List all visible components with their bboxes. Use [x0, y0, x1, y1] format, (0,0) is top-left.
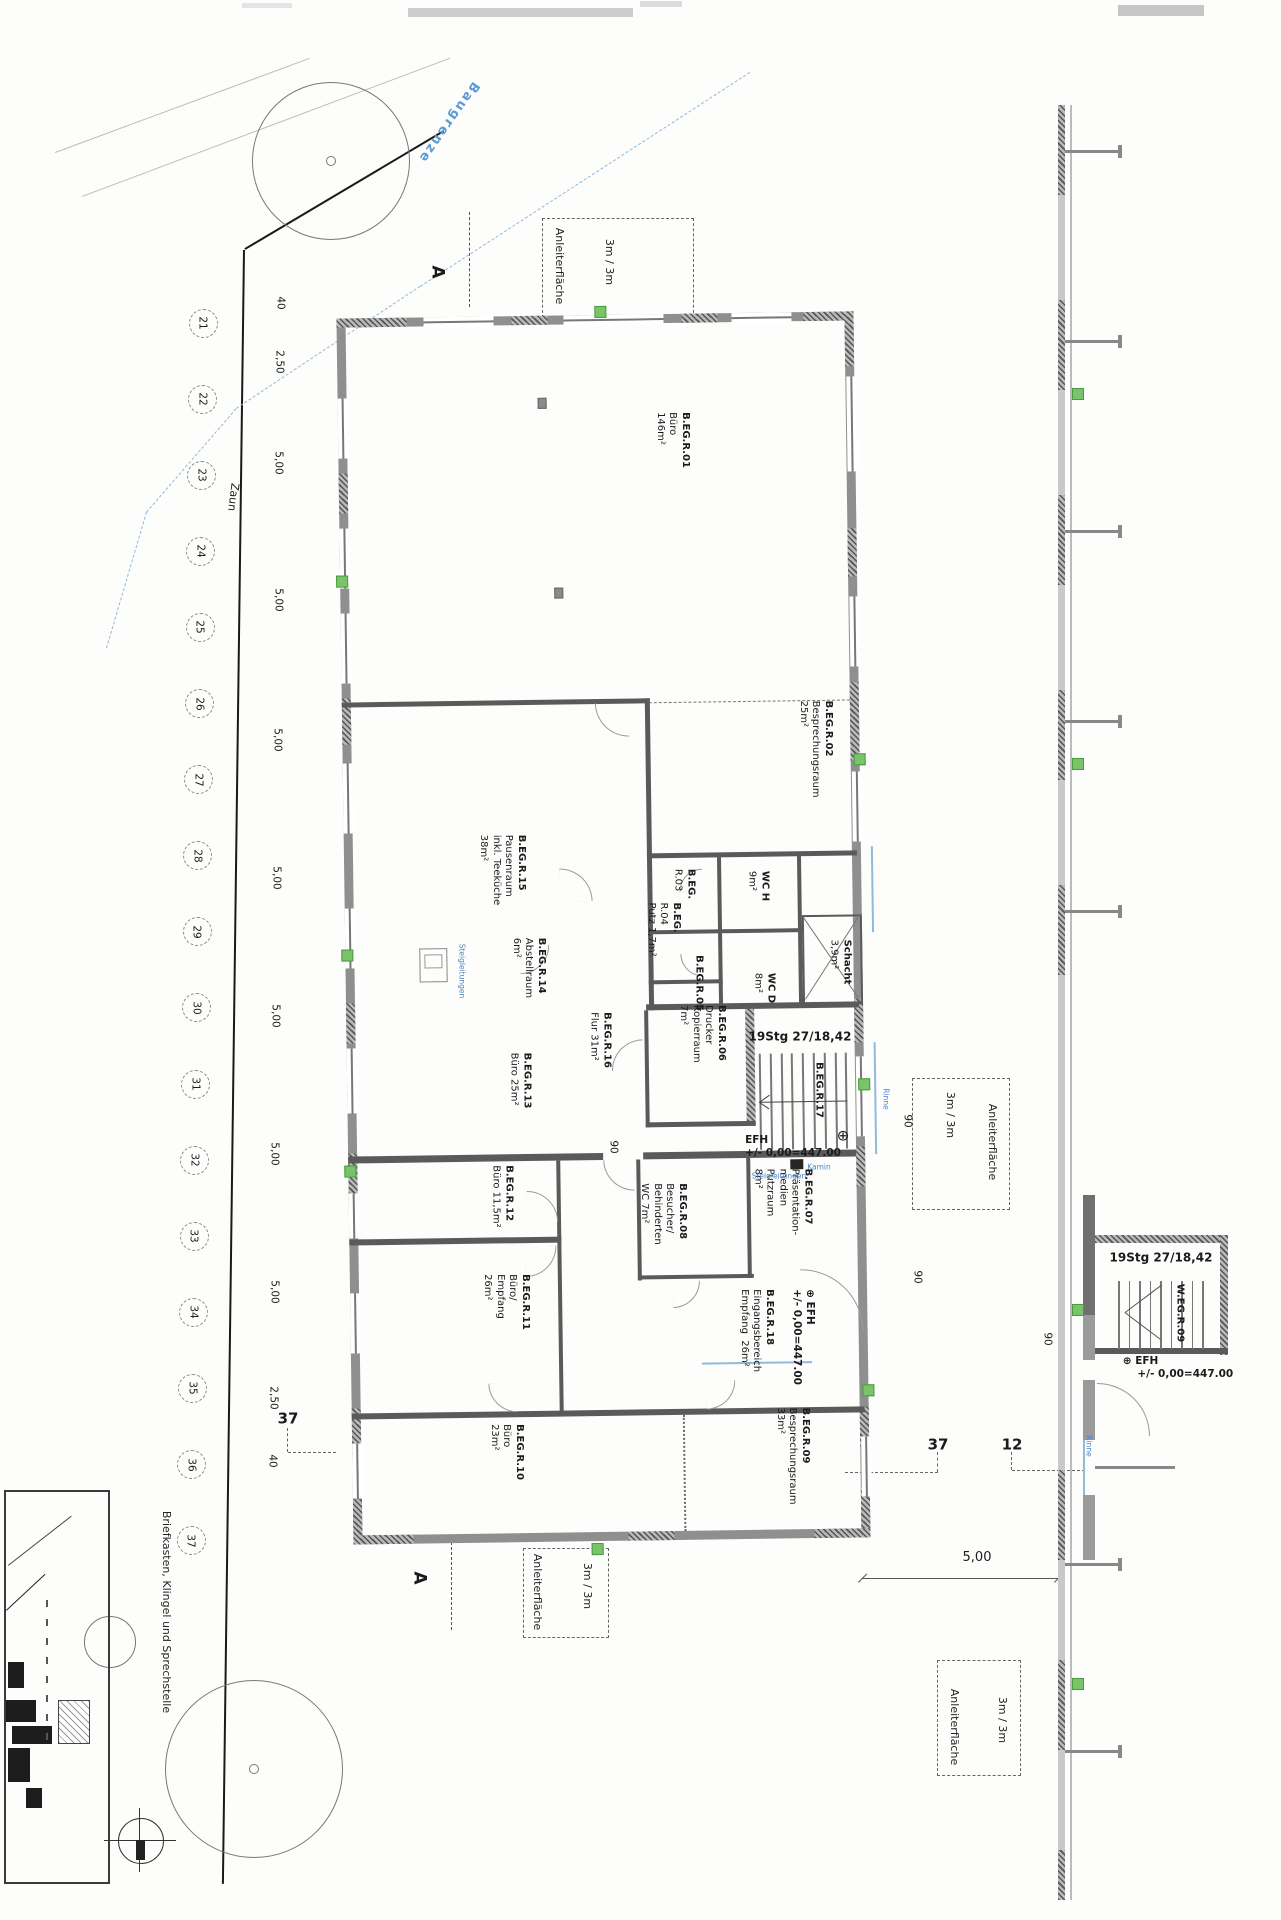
n90c-label: 90 [910, 1270, 923, 1283]
wall-hatch [850, 682, 860, 760]
dim-left-3: 5,00 [271, 588, 284, 611]
axis-number: 33 [188, 1230, 200, 1243]
wall-hatch [336, 318, 406, 328]
r02-label: B.EG.R.02 Besprechungsraum 25m² [796, 701, 834, 810]
green-marker [858, 1078, 870, 1090]
wall-hatch [346, 1003, 356, 1043]
wall-hatch [353, 1535, 413, 1545]
door-arc-r11 [525, 1246, 556, 1277]
r15-label: B.EG.R.15 Pausenraum inkl. Teeküche 38m² [477, 835, 527, 916]
interior-wall-heavy [348, 1153, 603, 1164]
axis-number: 25 [194, 621, 206, 634]
column [538, 398, 547, 409]
anl2a-label: Anleiterfläche [985, 1104, 999, 1180]
axis-number: 29 [191, 925, 203, 938]
green-marker [336, 575, 348, 587]
interior-wall [638, 1274, 754, 1280]
efh1-label: EFH +/- 0,00=447.00 [745, 1134, 841, 1160]
axis-circle-30: 30 [182, 993, 211, 1022]
r18-label: B.EG.R.18 Eingangsbereich Empfang 26m² [737, 1289, 775, 1383]
sym1-label: ⊕ [837, 1127, 850, 1146]
axis-number: 30 [190, 1001, 202, 1014]
floor-plan-page: B.EG.R.01 Büro 146m²B.EG.R.02 Besprechun… [0, 0, 1281, 1920]
briefk-label: Briefkasten, Klingel und Sprechstelle [159, 1511, 173, 1713]
interior-wall [556, 1161, 564, 1413]
p37b-label: 37 [928, 1436, 949, 1455]
axis-circle-37: 37 [177, 1526, 206, 1555]
rinne2-label: Rinne [1084, 1435, 1093, 1456]
interior-wall [646, 1121, 756, 1128]
axis-number: 24 [195, 545, 207, 558]
green-marker [344, 1165, 356, 1177]
r11-label: B.EG.R.11 Büro/ Empfang 26m² [481, 1274, 531, 1330]
bearing-wall-hatch [745, 1009, 756, 1126]
door-arc-r15 [559, 868, 592, 901]
wall-hatch [814, 1528, 870, 1538]
stg1-label: 19Stg 27/18,42 [749, 1030, 852, 1045]
r01-label: B.EG.R.01 Büro 146m² [653, 412, 691, 468]
dim-left-9: 2,50 [266, 1386, 279, 1409]
dim-left-0: 40 [273, 296, 286, 309]
door-arc-r12 [527, 1191, 558, 1222]
r09-label: B.EG.R.09 Besprechungsraum 33m² [773, 1408, 811, 1517]
stg2-label: 19Stg 27/18,42 [1110, 1251, 1213, 1266]
axis-circle-27: 27 [184, 765, 213, 794]
r10-label: B.EG.R.10 Büro 23m² [487, 1424, 525, 1480]
d500b-label: 5,00 [963, 1550, 992, 1566]
axis-number: 32 [189, 1153, 201, 1166]
axis-circle-33: 33 [180, 1222, 209, 1251]
wall-hatch [511, 316, 547, 326]
secA2-label: A [408, 1571, 429, 1584]
axis-circle-34: 34 [179, 1298, 208, 1327]
r14-label: B.EG.R.14 Abstellraum 6m² [509, 938, 547, 1007]
anl4a-label: Anleiterfläche [947, 1689, 961, 1765]
green-marker [592, 1543, 604, 1555]
axis-circle-32: 32 [180, 1146, 209, 1175]
axis-number: 23 [196, 469, 208, 482]
axis-circle-25: 25 [186, 613, 215, 642]
dim-left-5: 5,00 [269, 866, 282, 889]
schacht-label: Schacht 3,9m² [828, 940, 853, 985]
r17-label: B.EG.R.17 [812, 1062, 825, 1118]
wall-hatch [339, 473, 349, 513]
p37a-label: 37 [278, 1410, 299, 1429]
glass-partition-dotted [683, 1415, 687, 1531]
rinne1-label: Rinne [881, 1088, 890, 1109]
axis-circle-24: 24 [186, 537, 215, 566]
r08-label: B.EG.R.08 Besucher/ Behinderten WC 7m² [638, 1183, 688, 1253]
efh3-label: ⊕ EFH +/- 0,00=447.00 [1123, 1355, 1234, 1381]
axis-circle-23: 23 [187, 461, 216, 490]
interior-wall [647, 850, 857, 858]
dim-left-6: 5,00 [269, 1004, 282, 1027]
efh2-label: ⊕ EFH +/- 0,00=447.00 [790, 1289, 816, 1385]
rinne-line [874, 1042, 878, 1154]
kamin-label: Kamin [807, 1162, 831, 1171]
axis-circle-35: 35 [178, 1374, 207, 1403]
n90d-label: 90 [1040, 1332, 1053, 1345]
axis-number: 27 [193, 773, 205, 786]
axis-number: 22 [196, 392, 208, 405]
green-marker [854, 753, 866, 765]
n90a-label: 90 [606, 1140, 619, 1153]
dim-left-1: 2,50 [273, 350, 286, 373]
st1-label: Steigleitungen [457, 944, 466, 999]
door-arc-corridor [603, 1160, 634, 1191]
st2-label: Steigleitungen [752, 1171, 807, 1180]
axis-circle-22: 22 [188, 385, 217, 414]
interior-wall [644, 1010, 650, 1127]
anl3b-label: 3m / 3m [580, 1563, 594, 1609]
interior-wall [722, 928, 802, 933]
column [554, 587, 563, 598]
axis-circle-26: 26 [185, 689, 214, 718]
p12-label: 12 [1002, 1436, 1023, 1455]
dim-left-4: 5,00 [270, 728, 283, 751]
green-marker [341, 949, 353, 961]
dim-left-8: 5,00 [267, 1280, 280, 1303]
r16-label: B.EG.R.16 Flur 31m² [588, 1012, 613, 1068]
rinne-line [871, 846, 874, 932]
secA1-label: A [426, 265, 447, 278]
kitchen-sink [424, 954, 442, 968]
axis-number: 21 [197, 316, 209, 329]
dim-left-10: 40 [265, 1454, 278, 1467]
axis-circle-29: 29 [183, 917, 212, 946]
axis-number: 28 [192, 849, 204, 862]
axis-number: 37 [185, 1534, 197, 1547]
anl4b-label: 3m / 3m [995, 1697, 1009, 1743]
axis-number: 26 [193, 697, 205, 710]
r13-label: B.EG.R.13 Büro 25m² [508, 1053, 533, 1112]
anl2b-label: 3m / 3m [943, 1092, 957, 1138]
anl1b-label: 3m / 3m [602, 239, 616, 285]
wall-hatch [847, 528, 857, 576]
anl3a-label: Anleiterfläche [530, 1554, 544, 1630]
wall-hatch [856, 1146, 866, 1186]
axis-number: 35 [187, 1382, 199, 1395]
wall-hatch [844, 311, 854, 366]
axis-circle-21: 21 [189, 309, 218, 338]
r12-label: B.EG.R.12 Büro 11,5m² [490, 1165, 515, 1235]
anl1a-label: Anleiterfläche [552, 228, 566, 304]
door-arc-r10 [488, 1383, 517, 1412]
building-group [0, 0, 1281, 1920]
wch-label: WC H 9m² [746, 871, 771, 901]
dim-left-7: 5,00 [268, 1142, 281, 1165]
r03-label: B.EG. R.03 [672, 869, 697, 899]
exterior-wall-bottom [353, 1528, 870, 1544]
interior-wall [349, 1237, 561, 1246]
green-marker [594, 306, 606, 318]
axis-number: 34 [187, 1306, 199, 1319]
r04-label: B.EG. R.04 Putz 1,7m² [644, 902, 682, 963]
door-arc-r08 [673, 1281, 700, 1308]
wall-hatch [681, 313, 717, 323]
dim-left-2: 5,00 [272, 451, 285, 474]
weg09-label: W.EG.R.09 [1173, 1284, 1186, 1342]
wall-hatch [628, 1531, 674, 1541]
axis-circle-31: 31 [181, 1070, 210, 1099]
axis-number: 36 [186, 1458, 198, 1471]
axis-number: 31 [190, 1077, 202, 1090]
wcd-label: WC D 8m² [752, 973, 777, 1003]
r05-label: B.EG.R.05 [692, 955, 705, 1011]
door-arc-r01 [595, 703, 629, 737]
green-marker [862, 1384, 874, 1396]
door-arc-r09 [706, 1380, 735, 1409]
n90b-label: 90 [900, 1114, 913, 1127]
door-arc-r13 [612, 1039, 643, 1070]
interior-wall [649, 979, 723, 984]
r06-label: B.EG.R.06 Drucker Kopierraum 7m² [677, 1005, 727, 1071]
